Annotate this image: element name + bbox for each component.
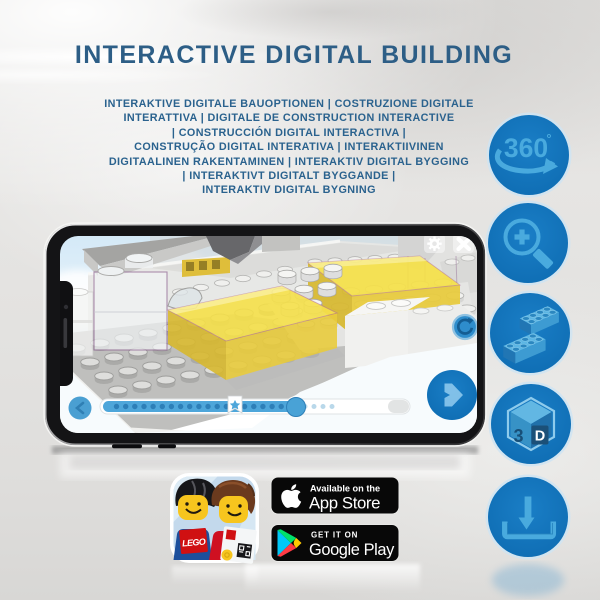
svg-text:GET IT ON: GET IT ON — [311, 531, 358, 540]
svg-text:LEGO: LEGO — [182, 536, 206, 548]
svg-text:App Store: App Store — [309, 494, 380, 513]
svg-text:D: D — [535, 429, 545, 445]
svg-text:Google Play: Google Play — [309, 541, 395, 559]
svg-text:3: 3 — [513, 426, 523, 446]
svg-text:°: ° — [546, 131, 551, 146]
svg-text:Available on the: Available on the — [310, 484, 380, 494]
svg-text:360: 360 — [504, 133, 548, 163]
